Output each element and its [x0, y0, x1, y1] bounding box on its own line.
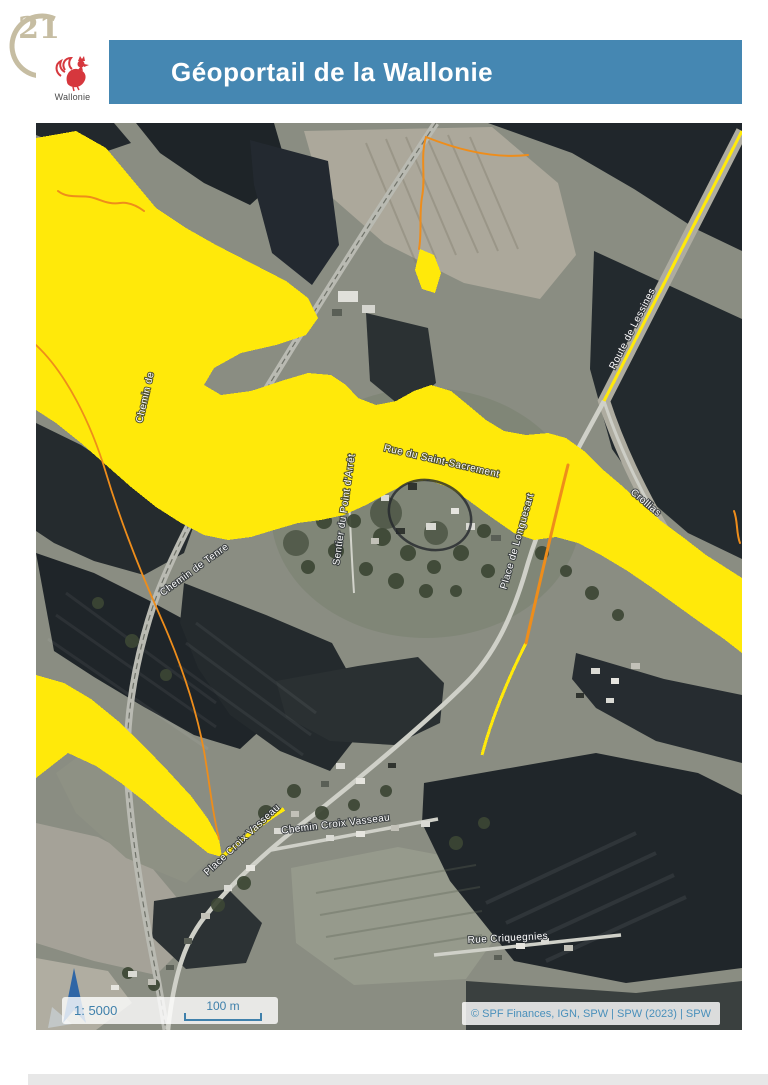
wallonie-logo: Wallonie: [36, 40, 109, 104]
aerial-map: Route de LessinesCrolliasRue du Saint-Sa…: [36, 123, 742, 1030]
scale-box: 1: 5000 100 m: [62, 997, 278, 1024]
logo-wordmark: Wallonie: [55, 92, 91, 102]
map-viewport: Route de LessinesCrolliasRue du Saint-Sa…: [36, 123, 742, 1030]
page-title: Géoportail de la Wallonie: [171, 57, 493, 88]
map-attribution: © SPF Finances, IGN, SPW | SPW (2023) | …: [462, 1002, 720, 1025]
scale-bar: 100 m: [184, 1001, 262, 1021]
rooster-icon: [51, 52, 95, 92]
scale-bar-label: 100 m: [206, 1001, 239, 1012]
scale-bar-bracket: [184, 1013, 262, 1021]
scanned-page: 21 Wallonie Géoportail de la Wallonie: [0, 0, 768, 1085]
next-page-edge: [28, 1074, 768, 1085]
header-bar: Wallonie Géoportail de la Wallonie: [36, 40, 742, 104]
scale-ratio: 1: 5000: [74, 1003, 117, 1018]
